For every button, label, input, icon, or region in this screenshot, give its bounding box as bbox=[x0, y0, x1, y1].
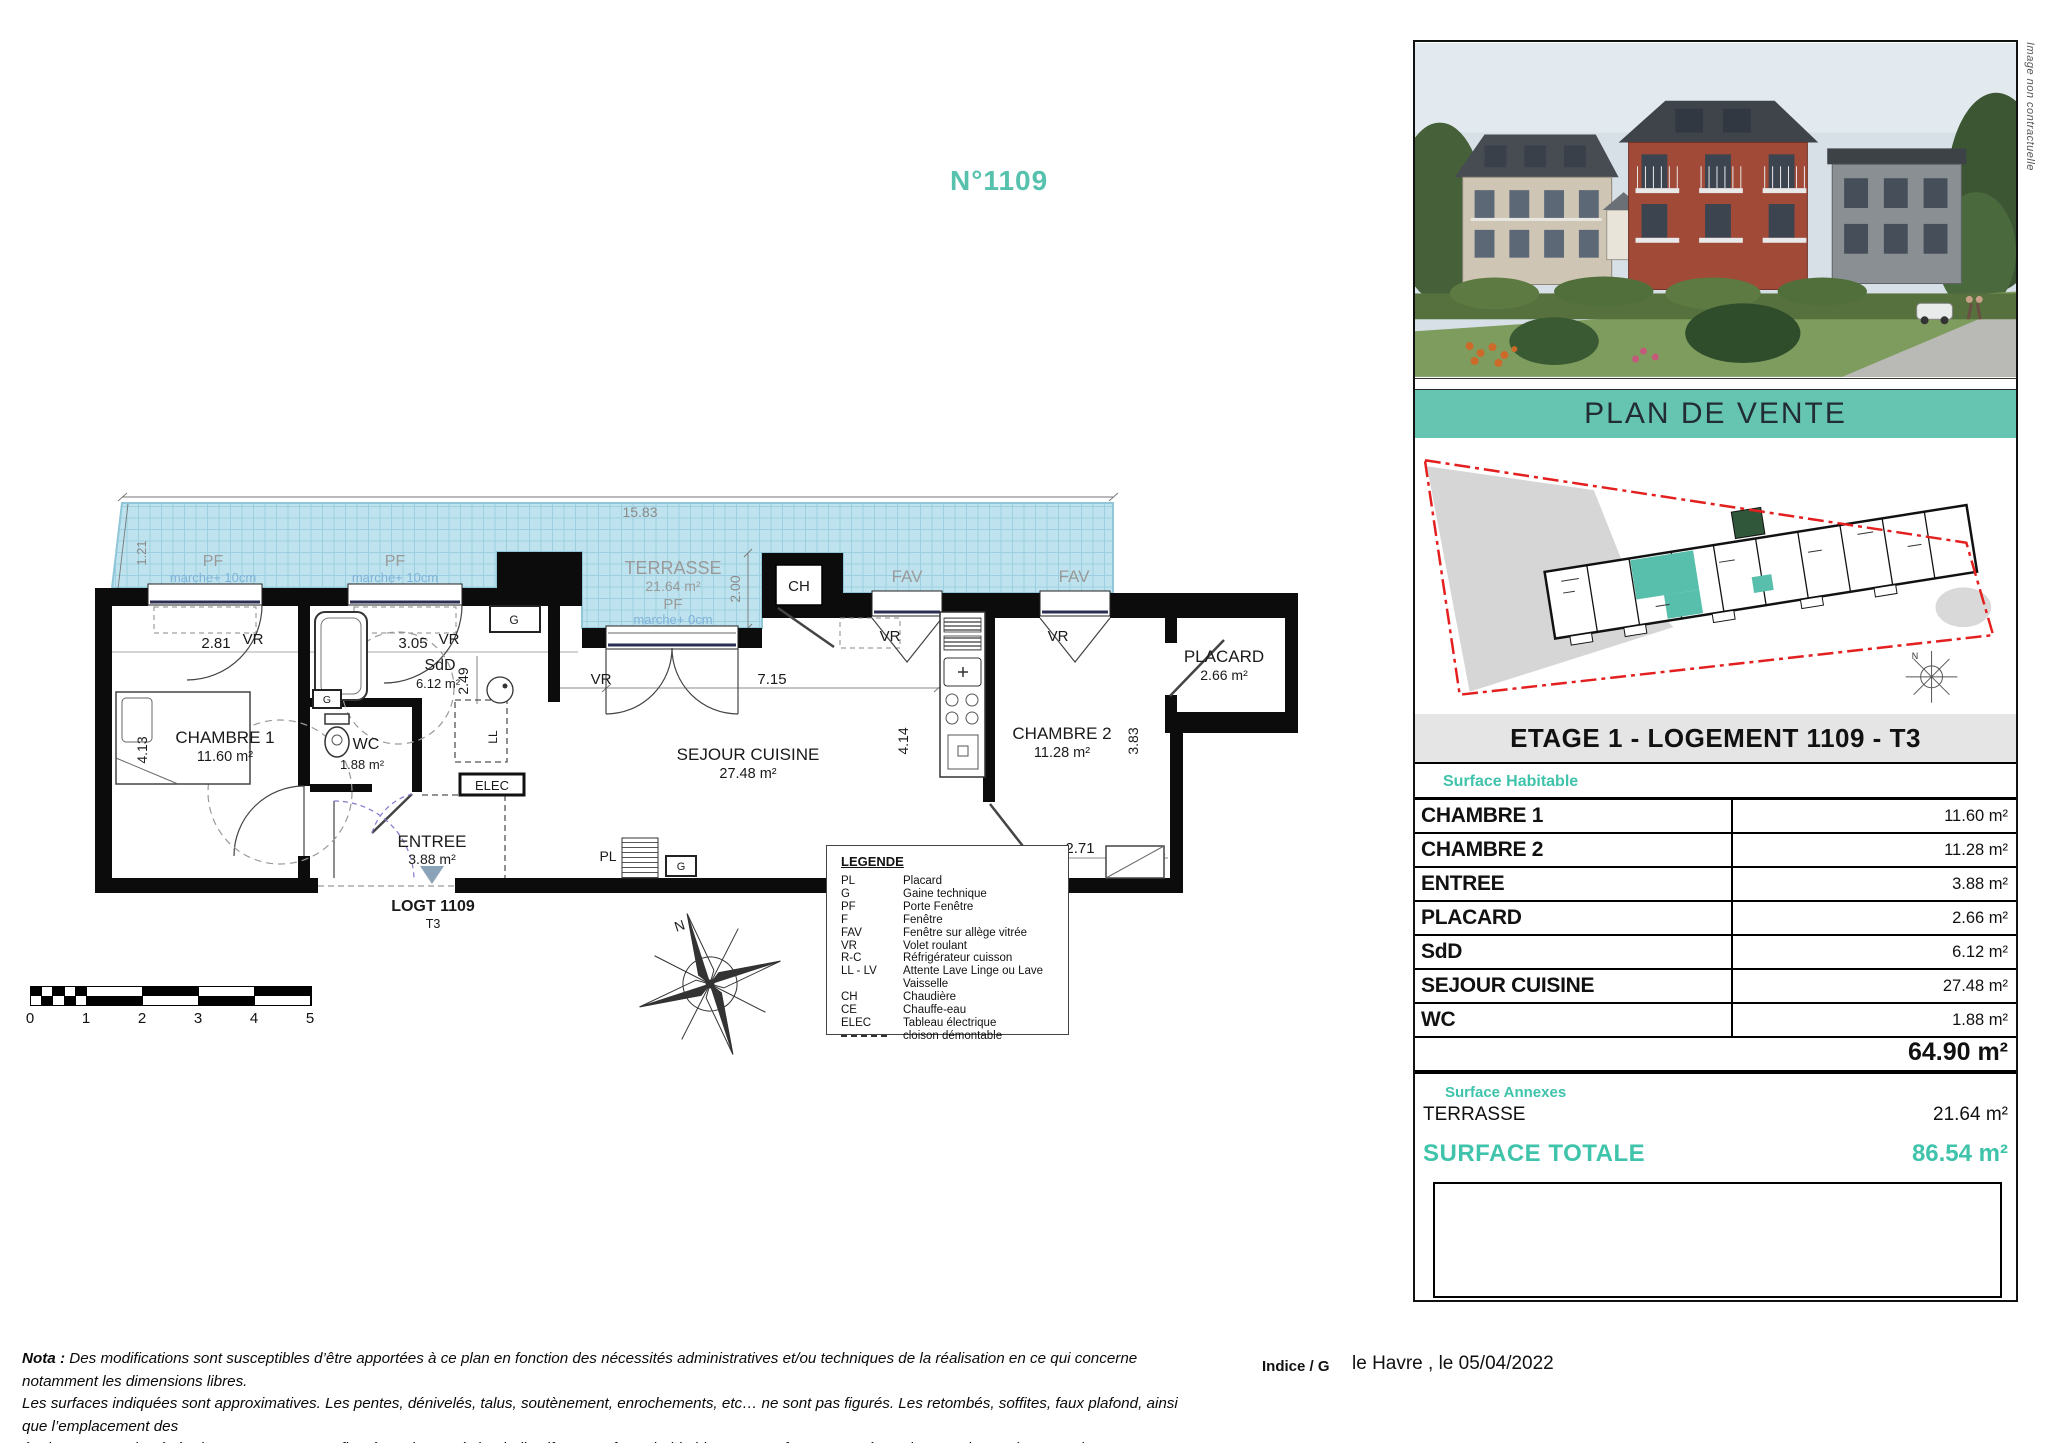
table-header: ETAGE 1 - LOGEMENT 1109 - T3 bbox=[1415, 714, 2016, 764]
svg-text:FAV: FAV bbox=[892, 567, 924, 586]
svg-text:2.81: 2.81 bbox=[201, 635, 230, 652]
nota-line-3: équipements ou la végétation ne sont pas… bbox=[22, 1438, 1197, 1443]
site-plan: N bbox=[1415, 438, 2016, 712]
ch-label: CH bbox=[788, 578, 810, 595]
site-plan-box: N bbox=[1415, 438, 2016, 716]
svg-text:2.49: 2.49 bbox=[455, 667, 471, 694]
legend-item: PFPorte Fenêtre bbox=[841, 901, 1068, 914]
total-surface-value: 64.90 m² bbox=[1908, 1038, 2008, 1067]
svg-text:PF: PF bbox=[385, 553, 406, 570]
image-caption-vertical: Image non contractuelle bbox=[2024, 42, 2036, 171]
svg-text:2.00: 2.00 bbox=[727, 575, 743, 602]
svg-text:4.13: 4.13 bbox=[134, 736, 150, 763]
pl-label: PL bbox=[599, 848, 616, 864]
legend-item: ELECTableau électrique bbox=[841, 1017, 1068, 1030]
svg-text:VR: VR bbox=[1048, 628, 1069, 645]
scale-bar-numbers: 0 1 2 3 4 5 bbox=[30, 1010, 312, 1030]
legend-item: R-CRéfrigérateur cuisson bbox=[841, 952, 1068, 965]
svg-text:3.05: 3.05 bbox=[398, 635, 427, 652]
legend-item: CHChaudière bbox=[841, 991, 1068, 1004]
svg-text:7.15: 7.15 bbox=[757, 671, 786, 688]
legend-item: LL - LVAttente Lave Linge ou Lave Vaisse… bbox=[841, 965, 1068, 991]
svg-text:1.21: 1.21 bbox=[134, 540, 149, 565]
nota-text: Nota : Des modifications sont susceptibl… bbox=[22, 1348, 1197, 1443]
svg-text:15.83: 15.83 bbox=[622, 504, 657, 520]
total-row: 64.90 m² bbox=[1415, 1035, 2016, 1074]
scale-bar-graphic bbox=[30, 986, 312, 1006]
svg-text:27.48 m²: 27.48 m² bbox=[719, 766, 776, 782]
svg-text:21.64 m²: 21.64 m² bbox=[645, 578, 701, 594]
nota-line-2: Les surfaces indiquées sont approximativ… bbox=[22, 1393, 1197, 1438]
room-label-sejour: SEJOUR CUISINE bbox=[677, 745, 820, 764]
table-row: PLACARD2.66 m² bbox=[1415, 902, 2016, 936]
plan-de-vente-band: PLAN DE VENTE bbox=[1415, 389, 2016, 439]
table-row: CHAMBRE 211.28 m² bbox=[1415, 834, 2016, 868]
apartment-number-title: N°1109 bbox=[950, 165, 1048, 197]
svg-text:11.60 m²: 11.60 m² bbox=[197, 749, 253, 765]
svg-text:G: G bbox=[677, 861, 686, 873]
svg-text:3.83: 3.83 bbox=[1125, 727, 1141, 754]
svg-text:2.66 m²: 2.66 m² bbox=[1200, 667, 1248, 683]
svg-text:marche+ 0cm: marche+ 0cm bbox=[633, 612, 712, 627]
terrasse-value: 21.64 m² bbox=[1933, 1104, 2008, 1126]
room-label-wc: WC bbox=[353, 736, 380, 753]
building-photo bbox=[1415, 42, 2016, 379]
scale-bar: 0 1 2 3 4 5 bbox=[30, 986, 312, 1030]
compass-rose: N bbox=[628, 902, 793, 1067]
sales-panel: PLAN DE VENTE bbox=[1413, 40, 2018, 1302]
notes-empty-box bbox=[1433, 1182, 2002, 1298]
indice-label: Indice / G bbox=[1262, 1358, 1330, 1375]
svg-text:VR: VR bbox=[439, 631, 460, 648]
legend-item: FAVFenêtre sur allège vitrée bbox=[841, 927, 1068, 940]
room-label-sdd: SdD bbox=[424, 657, 455, 674]
svg-text:TERRASSE: TERRASSE bbox=[624, 558, 721, 578]
svg-text:VR: VR bbox=[243, 631, 264, 648]
svg-text:1.88 m²: 1.88 m² bbox=[340, 757, 385, 772]
type-label: T3 bbox=[426, 917, 441, 931]
table-row: SEJOUR CUISINE27.48 m² bbox=[1415, 970, 2016, 1004]
table-row: CHAMBRE 111.60 m² bbox=[1415, 800, 2016, 834]
nota-line-1: Nota : Des modifications sont susceptibl… bbox=[22, 1348, 1197, 1393]
svg-text:marche+ 10cm: marche+ 10cm bbox=[352, 570, 438, 585]
svg-text:VR: VR bbox=[591, 671, 612, 688]
room-label-entree: ENTREE bbox=[398, 832, 467, 851]
legend-item: VRVolet roulant bbox=[841, 940, 1068, 953]
svg-text:PF: PF bbox=[663, 596, 682, 613]
surface-table: CHAMBRE 111.60 m² CHAMBRE 211.28 m² ENTR… bbox=[1415, 797, 2016, 1038]
legend-item-cloison: cloison démontable bbox=[841, 1030, 1068, 1047]
svg-text:11.28 m²: 11.28 m² bbox=[1034, 745, 1090, 761]
legend-item: PLPlacard bbox=[841, 875, 1068, 888]
table-row: ENTREE3.88 m² bbox=[1415, 868, 2016, 902]
room-label-chambre1: CHAMBRE 1 bbox=[175, 728, 274, 747]
ll-label: LL bbox=[486, 730, 500, 744]
svg-text:G: G bbox=[509, 613, 518, 627]
legend-title: LEGENDE bbox=[841, 854, 1068, 869]
svg-text:PF: PF bbox=[203, 553, 224, 570]
legend-item: FFenêtre bbox=[841, 914, 1068, 927]
plan-de-vente-title: PLAN DE VENTE bbox=[1584, 397, 1847, 431]
legend-item: GGaine technique bbox=[841, 888, 1068, 901]
surface-habitable-row: Surface Habitable bbox=[1415, 766, 2016, 797]
cloison-demontable-symbol bbox=[841, 1035, 887, 1043]
svg-text:4.14: 4.14 bbox=[895, 727, 911, 754]
surface-annexes-label: Surface Annexes bbox=[1445, 1084, 1566, 1101]
svg-text:VR: VR bbox=[880, 628, 901, 645]
surface-totale-label: SURFACE TOTALE bbox=[1423, 1140, 1645, 1168]
plan-de-vente-page: N°1109 bbox=[0, 0, 2048, 1443]
svg-text:G: G bbox=[323, 694, 331, 706]
terrasse-label: TERRASSE bbox=[1423, 1104, 1525, 1126]
surface-habitable-label: Surface Habitable bbox=[1443, 773, 1578, 791]
svg-text:FAV: FAV bbox=[1059, 567, 1091, 586]
annex-row: TERRASSE 21.64 m² bbox=[1415, 1104, 2016, 1130]
surface-totale-row: SURFACE TOTALE 86.54 m² bbox=[1415, 1140, 2016, 1174]
room-label-chambre2: CHAMBRE 2 bbox=[1012, 724, 1111, 743]
compass-north-label: N bbox=[672, 916, 687, 934]
place-date: le Havre , le 05/04/2022 bbox=[1352, 1353, 1554, 1375]
building-render bbox=[1415, 42, 2016, 378]
svg-text:3.88 m²: 3.88 m² bbox=[408, 851, 456, 867]
surface-totale-value: 86.54 m² bbox=[1912, 1140, 2008, 1168]
table-row: WC1.88 m² bbox=[1415, 1004, 2016, 1038]
elec-label: ELEC bbox=[475, 778, 509, 793]
svg-text:2.71: 2.71 bbox=[1065, 840, 1094, 857]
legend-box: LEGENDE PLPlacard GGaine technique PFPor… bbox=[826, 845, 1069, 1035]
svg-text:6.12 m²: 6.12 m² bbox=[416, 676, 461, 691]
logt-label: LOGT 1109 bbox=[391, 898, 475, 915]
room-label-placard: PLACARD bbox=[1184, 647, 1264, 666]
svg-text:N: N bbox=[1912, 651, 1918, 661]
entrance-arrow bbox=[420, 866, 444, 884]
legend-item: CEChauffe-eau bbox=[841, 1004, 1068, 1017]
svg-text:marche+ 10cm: marche+ 10cm bbox=[170, 570, 256, 585]
table-row: SdD6.12 m² bbox=[1415, 936, 2016, 970]
